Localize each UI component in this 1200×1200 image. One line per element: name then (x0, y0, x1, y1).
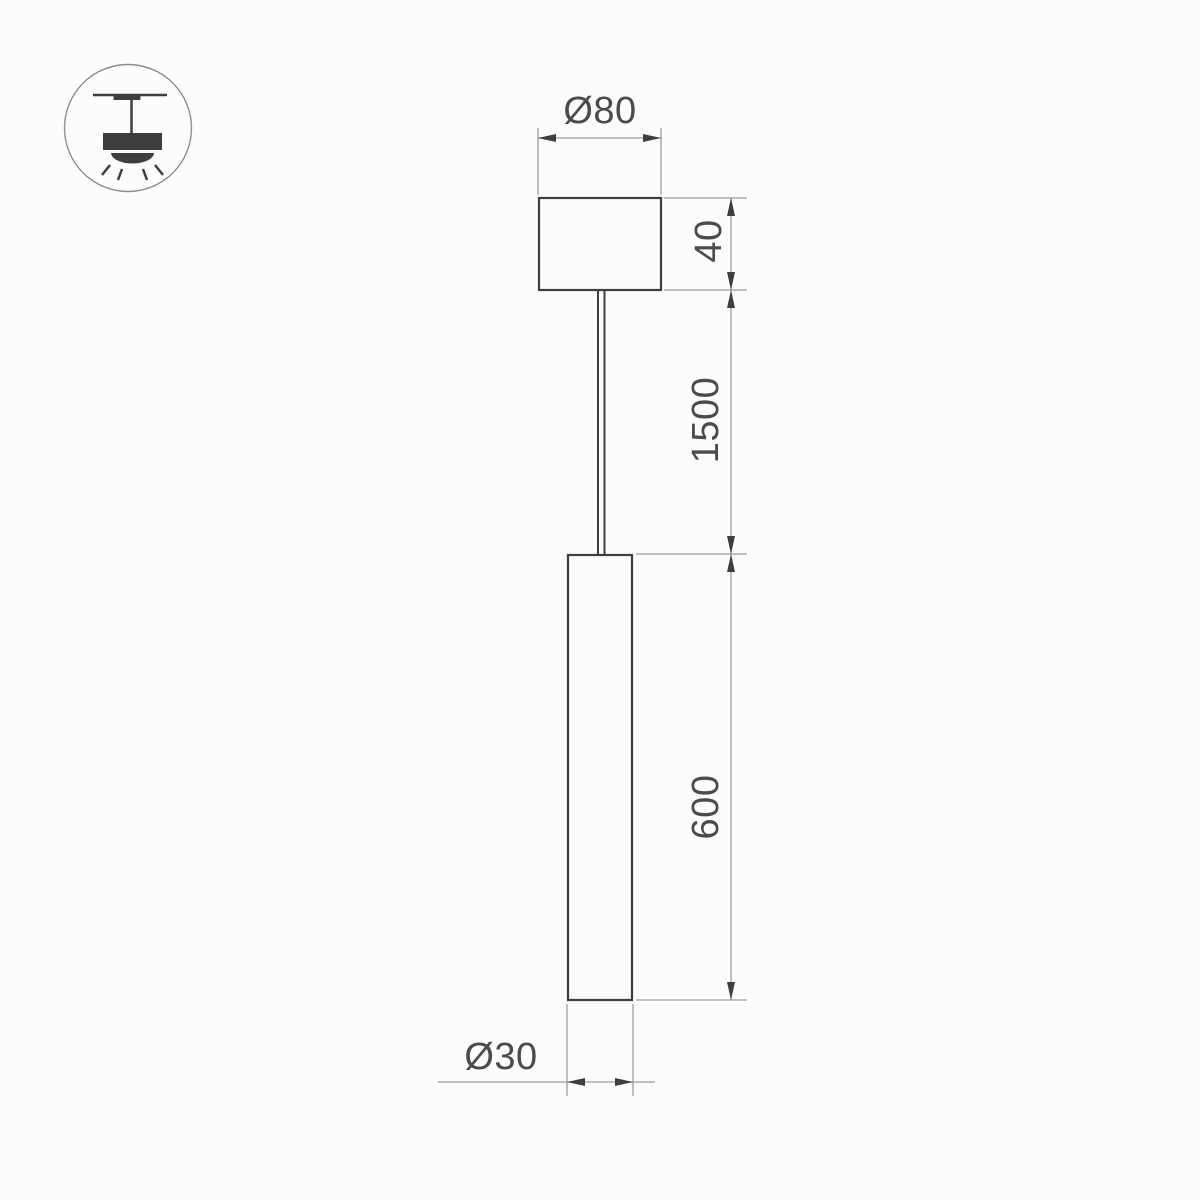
dim-label-suspension-length: 1500 (685, 377, 727, 464)
dim-label-canopy-diameter: Ø80 (563, 90, 636, 132)
lamp-outline (539, 198, 661, 1000)
canopy-body (539, 198, 661, 290)
icon-lamp-shade (103, 133, 162, 150)
dimension-canopy-height: 40 (664, 198, 747, 290)
dimension-tube-length: 600 (636, 554, 747, 1000)
arrow-down-icon (727, 272, 735, 290)
dimension-tube-diameter: Ø30 (438, 1004, 655, 1096)
tube-body (568, 555, 632, 1000)
arrow-up-icon (727, 290, 735, 308)
icon-circle-border (65, 65, 192, 192)
dimension-suspension-length: 1500 (636, 290, 747, 554)
arrow-left-icon (538, 134, 556, 142)
arrow-left-icon (567, 1078, 585, 1086)
dim-label-tube-length: 600 (685, 775, 727, 840)
arrow-down-icon (727, 536, 735, 554)
arrow-up-icon (727, 554, 735, 572)
icon-mount-plate (114, 95, 141, 100)
technical-drawing-canvas: Ø80 40 1500 600 (0, 0, 1200, 1200)
arrow-down-icon (727, 982, 735, 1000)
dim-label-tube-diameter: Ø30 (464, 1036, 537, 1078)
dimension-canopy-diameter: Ø80 (538, 90, 661, 195)
arrow-right-icon (615, 1078, 633, 1086)
dim-label-canopy-height: 40 (688, 219, 730, 262)
arrow-right-icon (643, 134, 661, 142)
ceiling-pendant-lamp-icon (65, 65, 192, 192)
arrow-up-icon (727, 198, 735, 216)
pendant-lamp-dimension-drawing: Ø80 40 1500 600 (0, 0, 1200, 1200)
